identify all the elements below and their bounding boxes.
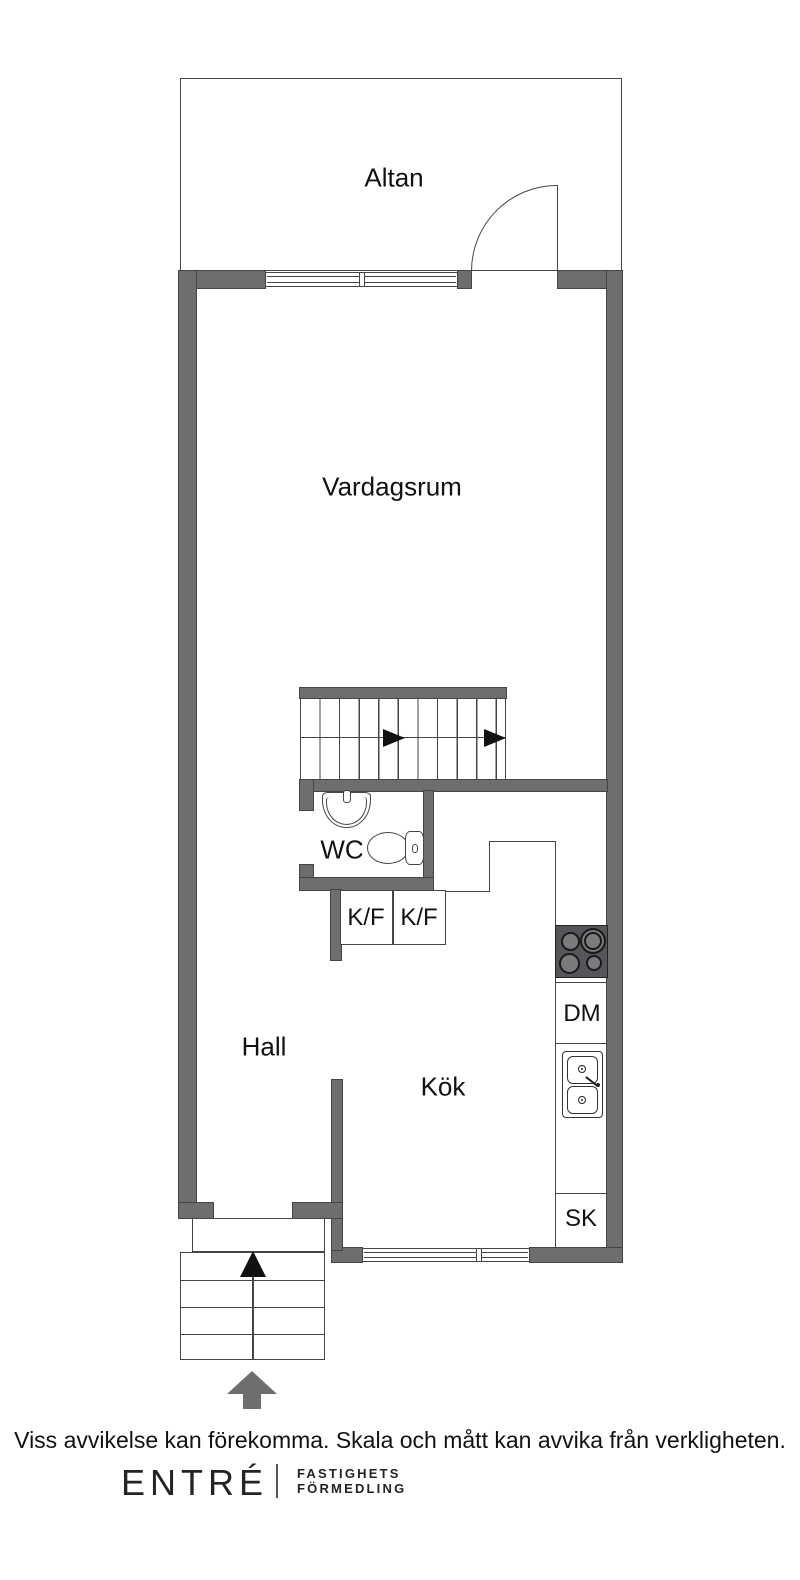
room-label-wc: WC <box>320 835 363 866</box>
disclaimer-text: Viss avvikelse kan förekomma. Skala och … <box>0 1427 800 1454</box>
toilet-icon <box>367 832 409 864</box>
counter-left-edge <box>555 841 556 1248</box>
appliance-label-sk: SK <box>565 1205 597 1233</box>
hall-kitchen-wall-foot <box>293 1203 342 1218</box>
stairs-direction-arrow-icon <box>383 729 405 747</box>
hall-kitchen-wall <box>332 1080 342 1250</box>
wc-bottom-wall <box>300 878 433 890</box>
wc-right-wall <box>424 791 433 890</box>
entrance-arrow-stem <box>243 1394 261 1409</box>
logo-tagline-line2: FÖRMEDLING <box>297 1481 406 1496</box>
entrance-arrow-icon <box>227 1371 277 1394</box>
counter-divider <box>555 982 607 983</box>
stairs-direction-arrow-icon <box>484 729 506 747</box>
entry-landing <box>192 1218 325 1252</box>
right-exterior-wall <box>607 271 622 1262</box>
room-label-hall: Hall <box>242 1032 287 1063</box>
entry-center-line <box>252 1277 253 1359</box>
kitchen-sink-icon <box>562 1051 603 1118</box>
faucet-icon <box>343 790 351 803</box>
counter-edge <box>446 891 490 892</box>
counter-divider <box>555 1193 607 1194</box>
room-label-altan: Altan <box>364 163 423 194</box>
counter-edge <box>489 841 556 842</box>
top-wall-mid <box>458 271 471 288</box>
burner-icon <box>586 955 602 971</box>
bottom-wall-right-segment <box>530 1248 622 1262</box>
window-top-icon <box>265 272 458 287</box>
burner-icon <box>559 953 580 974</box>
window-bottom-icon <box>362 1248 530 1262</box>
logo-brand: ENTRÉ <box>121 1462 268 1504</box>
left-wall-foot <box>179 1203 213 1218</box>
room-label-kok: Kök <box>421 1072 466 1103</box>
appliance-label-dm: DM <box>563 1000 600 1028</box>
floorplan-canvas: Altan Vardagsrum WC K/F K/F <box>0 0 800 1580</box>
bottom-wall-left-segment <box>332 1248 362 1262</box>
appliance-label-kf-left: K/F <box>347 904 384 932</box>
logo-divider <box>276 1464 278 1498</box>
left-exterior-wall <box>179 271 196 1203</box>
stair-top-wall <box>300 688 506 698</box>
appliance-label-kf-right: K/F <box>400 904 437 932</box>
toilet-flush-button-icon <box>412 844 418 853</box>
counter-edge <box>489 841 490 892</box>
counter-divider <box>555 1043 607 1044</box>
burner-icon <box>580 928 606 954</box>
room-label-vardagsrum: Vardagsrum <box>322 472 462 503</box>
wc-left-stub-top <box>300 780 313 810</box>
burner-icon <box>561 932 580 951</box>
logo-tagline-line1: FASTIGHETS <box>297 1466 401 1481</box>
entry-direction-arrow-icon <box>240 1251 266 1277</box>
